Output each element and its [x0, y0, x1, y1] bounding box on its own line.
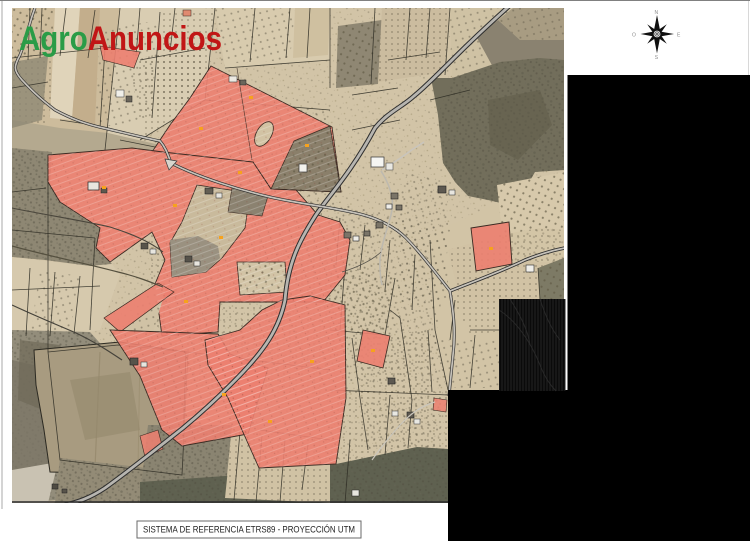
svg-text:SISTEMA DE REFERENCIA ETRS89 -: SISTEMA DE REFERENCIA ETRS89 - PROYECCIÓ…: [143, 525, 355, 535]
svg-text:O: O: [632, 33, 636, 39]
svg-text:AgroAnuncios: AgroAnuncios: [19, 20, 222, 58]
svg-text:N: N: [655, 10, 659, 16]
